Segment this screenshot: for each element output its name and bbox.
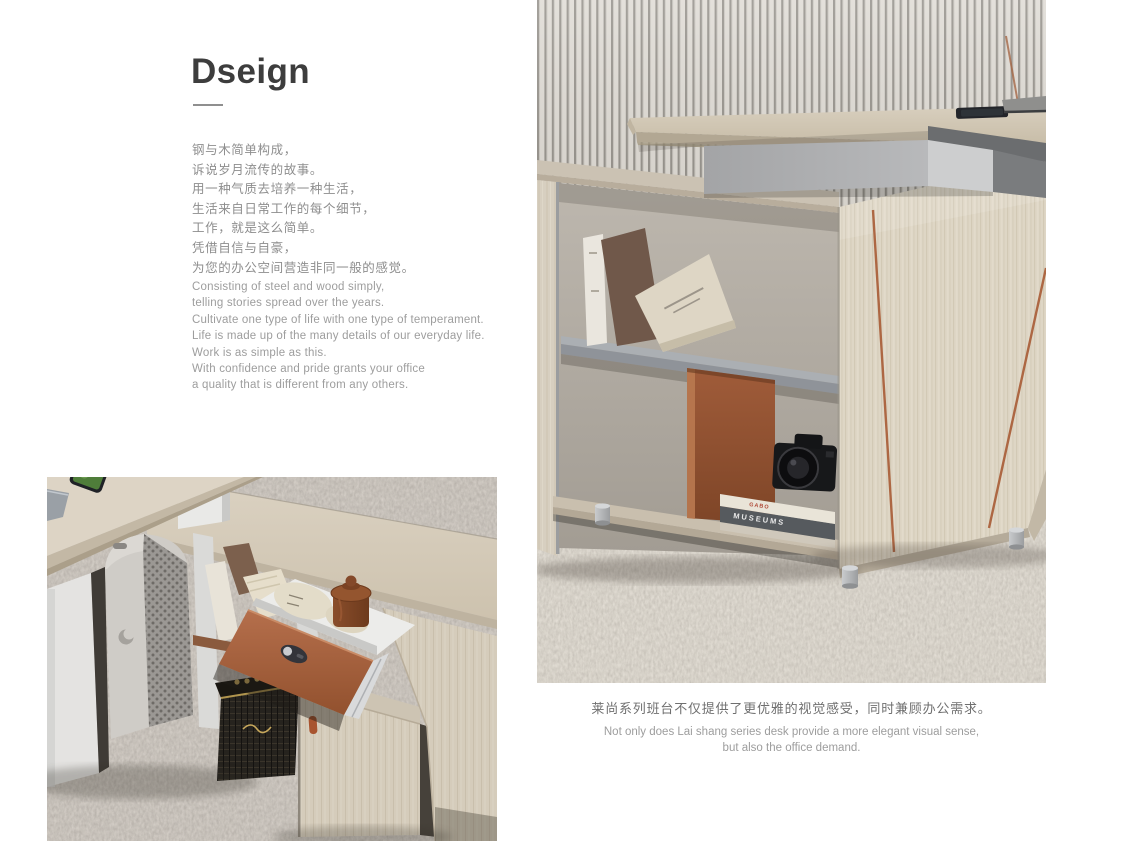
caption-en-line: Not only does Lai shang series desk prov… xyxy=(537,725,1046,741)
intro-zh-line: 为您的办公空间营造非同一般的感觉。 xyxy=(192,259,415,279)
support-box-front xyxy=(704,140,928,194)
title-underline-divider xyxy=(193,104,223,106)
intro-en-line: Consisting of steel and wood simply, xyxy=(192,279,485,295)
intro-en-line: With confidence and pride grants your of… xyxy=(192,361,485,377)
intro-zh-line: 钢与木简单构成， xyxy=(192,141,415,161)
computer-tower xyxy=(105,534,193,739)
intro-zh-line: 诉说岁月流传的故事。 xyxy=(192,161,415,181)
photo-caption: 莱尚系列班台不仅提供了更优雅的视觉感受，同时兼顾办公需求。 Not only d… xyxy=(537,700,1046,756)
cabinet-foot xyxy=(1009,527,1024,549)
right-photo-illustration: MUSEUMS GABO xyxy=(537,0,1046,683)
tower-handle xyxy=(113,543,127,549)
caption-en-line: but also the office demand. xyxy=(537,741,1046,757)
tower-grille-side xyxy=(143,534,193,727)
intro-en-line: Life is made up of the many details of o… xyxy=(192,328,485,344)
intro-en-line: telling stories spread over the years. xyxy=(192,295,485,311)
product-photo-right: MUSEUMS GABO xyxy=(537,0,1046,683)
intro-en-line: a quality that is different from any oth… xyxy=(192,377,485,393)
intro-en-line: Work is as simple as this. xyxy=(192,345,485,361)
intro-zh-line: 用一种气质去培养一种生活， xyxy=(192,180,415,200)
cabinet-side-panel xyxy=(838,159,1047,578)
product-photo-left xyxy=(47,477,497,841)
phone-on-desk xyxy=(956,106,1008,119)
left-photo-illustration xyxy=(47,477,497,841)
cabinet-foot xyxy=(595,503,610,525)
page-title: Dseign xyxy=(191,53,310,92)
intro-zh-line: 生活来自日常工作的每个细节， xyxy=(192,200,415,220)
cabinet-foot xyxy=(842,565,858,589)
intro-zh-line: 工作，就是这么简单。 xyxy=(192,219,415,239)
intro-en-line: Cultivate one type of life with one type… xyxy=(192,312,485,328)
intro-paragraph-chinese: 钢与木简单构成， 诉说岁月流传的故事。 用一种气质去培养一种生活， 生活来自日常… xyxy=(192,141,415,278)
side-cabinet: MUSEUMS GABO xyxy=(537,160,839,568)
caption-chinese: 莱尚系列班台不仅提供了更优雅的视觉感受，同时兼顾办公需求。 xyxy=(537,700,1046,718)
intro-zh-line: 凭借自信与自豪， xyxy=(192,239,415,259)
intro-paragraph-english: Consisting of steel and wood simply, tel… xyxy=(192,279,485,394)
caption-english: Not only does Lai shang series desk prov… xyxy=(537,725,1046,756)
